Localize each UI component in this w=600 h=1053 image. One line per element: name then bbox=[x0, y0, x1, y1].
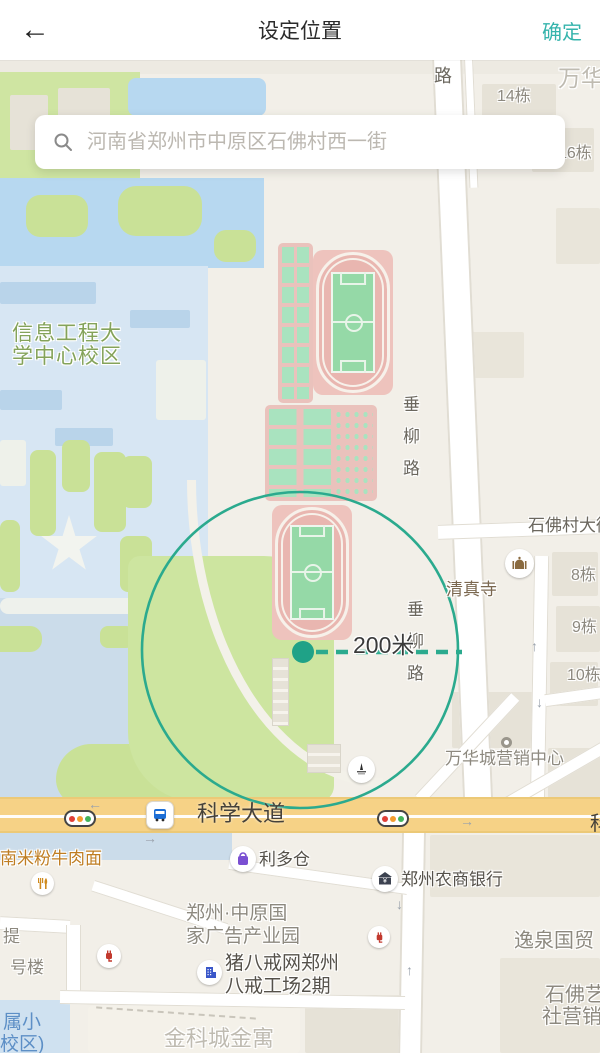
road-label-kexue-avenue: 科学大道 bbox=[197, 802, 285, 827]
small-buildings-row bbox=[307, 744, 341, 773]
poi-label-school-line1: 属小 bbox=[3, 1012, 41, 1033]
poi-label-building9: 9栋 bbox=[572, 619, 597, 637]
restaurant-icon bbox=[31, 872, 54, 895]
mosque-icon bbox=[505, 549, 534, 578]
poi-label-school-line2: 校区) bbox=[0, 1034, 44, 1053]
road-label-char: 路 bbox=[407, 659, 424, 684]
poi-label-shifo-art-line1: 石佛艺 bbox=[545, 984, 600, 1006]
building-block bbox=[468, 332, 524, 378]
road-arrow-up: ↑ bbox=[406, 962, 413, 978]
football-pitch bbox=[331, 272, 375, 373]
campus-white-building bbox=[0, 440, 26, 486]
court-grid bbox=[269, 409, 331, 497]
campus-building bbox=[0, 282, 96, 304]
bus-stop-icon bbox=[146, 801, 174, 829]
confirm-button[interactable]: 确定 bbox=[524, 16, 600, 45]
lake-island bbox=[214, 230, 256, 262]
road-label-char: 柳 bbox=[403, 422, 420, 447]
poi-label-wanhua-sales-center: 万华城营销中心 bbox=[445, 749, 564, 768]
poi-label-liduocang: 利多仓 bbox=[259, 850, 310, 869]
road-arrow-up: ↑ bbox=[531, 638, 538, 654]
road-label-partial: 路 bbox=[434, 66, 452, 86]
poi-label-university-line2: 学中心校区 bbox=[12, 345, 122, 369]
poi-label-zhubajie-line1: 猪八戒网郑州 bbox=[225, 953, 339, 974]
road-label-char: 垂 bbox=[403, 390, 420, 415]
road-label-shifocun-street: 石佛村大街 bbox=[528, 516, 600, 535]
campus-building bbox=[130, 310, 190, 328]
poi-label-building14: 14栋 bbox=[497, 88, 531, 106]
basketball-courts-strip bbox=[278, 243, 313, 403]
goal-box bbox=[340, 272, 366, 285]
goal-box bbox=[299, 608, 325, 620]
stadium-south bbox=[272, 505, 352, 640]
road-bottom-vertical bbox=[398, 832, 426, 1053]
landmark-logo-icon bbox=[348, 756, 375, 783]
traffic-light-icon bbox=[64, 810, 96, 827]
road-arrow-down: ↓ bbox=[536, 694, 543, 710]
pond-shore-green bbox=[0, 626, 42, 652]
campus-green bbox=[0, 520, 20, 592]
charging-icon bbox=[97, 944, 121, 968]
poi-label-haolou: 号楼 bbox=[10, 958, 44, 977]
campus-building bbox=[0, 390, 62, 410]
poi-label-noodle-shop: 南米粉牛肉面 bbox=[0, 849, 102, 868]
poi-label-yiquan: 逸泉国贸 bbox=[514, 930, 594, 952]
header-bar: ← 设定位置 确定 bbox=[0, 0, 600, 60]
running-track bbox=[275, 507, 350, 639]
poi-label-building10: 10栋 bbox=[567, 667, 600, 685]
poi-label-ti: 提 bbox=[3, 927, 20, 946]
search-input[interactable] bbox=[85, 130, 565, 155]
charging-icon bbox=[368, 926, 390, 948]
poi-label-university-line1: 信息工程大 bbox=[12, 322, 122, 346]
building-block bbox=[556, 208, 600, 264]
poi-label-bank: 郑州农商银行 bbox=[401, 870, 503, 889]
poi-label-adpark-line1: 郑州·中原国 bbox=[186, 903, 287, 924]
football-pitch bbox=[290, 525, 334, 619]
road-arrow-down: ↓ bbox=[396, 896, 403, 912]
road-label-kexue-partial: 科 bbox=[590, 813, 600, 835]
road-arrow-left: ← bbox=[88, 796, 102, 812]
search-icon bbox=[53, 132, 73, 152]
office-building-icon bbox=[197, 960, 222, 985]
road-chuiliu bbox=[432, 60, 494, 819]
lake-island bbox=[118, 186, 202, 236]
small-buildings-strip bbox=[272, 658, 289, 726]
poi-label-wanhua: 万华 bbox=[558, 66, 600, 92]
search-bar bbox=[35, 115, 565, 169]
bank-icon: ¥ bbox=[372, 866, 398, 892]
campus-white-building bbox=[156, 360, 206, 420]
set-location-screen: 路 万华 14栋 16栋 信息工程大 学中心校区 垂 柳 路 垂 柳 路 石佛村… bbox=[0, 0, 600, 1053]
goal-box bbox=[340, 360, 366, 373]
goal-box bbox=[299, 525, 325, 537]
road-right-vertical bbox=[530, 556, 549, 806]
campus-green bbox=[62, 440, 90, 492]
road-arrow-right: → bbox=[460, 813, 474, 829]
court-grid bbox=[282, 247, 309, 399]
page-title: 设定位置 bbox=[258, 15, 342, 45]
liduocang-bag-icon bbox=[230, 846, 256, 872]
running-track bbox=[316, 252, 391, 393]
road-label-char: 路 bbox=[403, 454, 420, 479]
campus-green bbox=[122, 456, 152, 508]
dorm-courts-block bbox=[265, 405, 377, 501]
road-label-char: 垂 bbox=[407, 595, 424, 620]
campus-green bbox=[30, 450, 56, 536]
poi-label-zhubajie-line2: 八戒工场2期 bbox=[225, 976, 331, 997]
poi-label-building8: 8栋 bbox=[571, 567, 596, 585]
map-lake-small bbox=[128, 78, 266, 116]
dorm-buildings bbox=[334, 409, 373, 497]
svg-text:¥: ¥ bbox=[383, 878, 387, 885]
back-button[interactable]: ← bbox=[0, 0, 70, 60]
map-canvas[interactable]: 路 万华 14栋 16栋 信息工程大 学中心校区 垂 柳 路 垂 柳 路 石佛村… bbox=[0, 60, 600, 1053]
road-label-chuiliu-north: 垂 柳 路 bbox=[403, 390, 420, 479]
road-arrow-right: → bbox=[143, 830, 157, 846]
poi-label-adpark-line2: 家广告产业园 bbox=[186, 926, 300, 947]
poi-dot-marker bbox=[501, 737, 512, 748]
poi-label-jinkecheng: 金科城金寓 bbox=[164, 1027, 274, 1052]
stadium-north bbox=[313, 250, 393, 395]
radius-label: 200米 bbox=[353, 633, 414, 659]
poi-label-mosque: 清真寺 bbox=[446, 580, 497, 599]
traffic-light-icon bbox=[377, 810, 409, 827]
lake-island bbox=[26, 195, 88, 237]
poi-label-shifo-art-line2: 社营销 bbox=[542, 1006, 600, 1028]
